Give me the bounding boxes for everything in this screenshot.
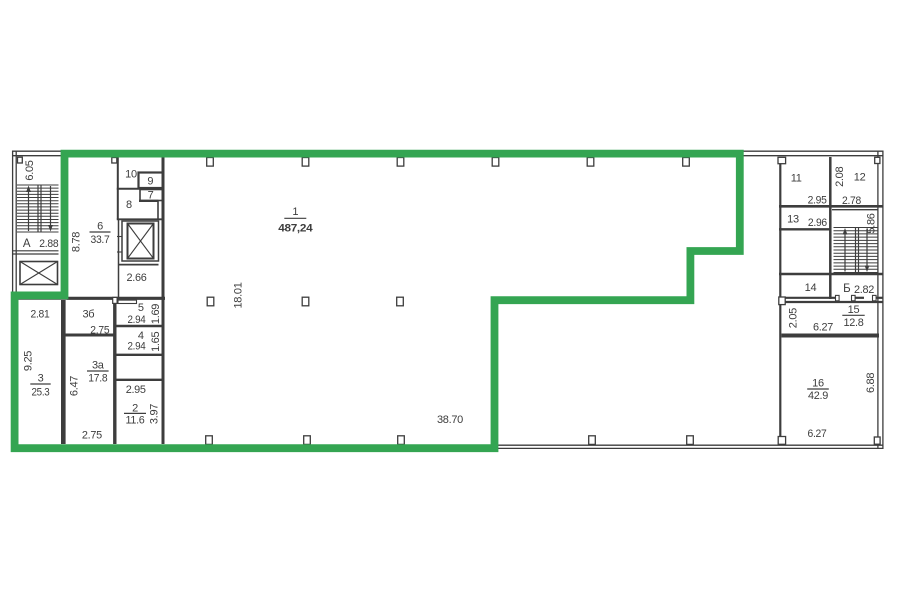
svg-text:8.78: 8.78 [70, 232, 82, 252]
svg-text:2: 2 [132, 402, 138, 414]
svg-text:42.9: 42.9 [808, 390, 828, 402]
svg-text:38.70: 38.70 [437, 414, 463, 426]
svg-text:6.27: 6.27 [813, 322, 833, 334]
svg-text:11.6: 11.6 [126, 415, 145, 427]
svg-text:2.96: 2.96 [808, 217, 827, 229]
svg-text:13: 13 [787, 214, 799, 226]
svg-text:12: 12 [854, 171, 866, 183]
svg-text:2.94: 2.94 [128, 314, 146, 326]
svg-text:15: 15 [848, 304, 860, 316]
svg-text:1.65: 1.65 [150, 332, 162, 352]
svg-text:6.47: 6.47 [68, 376, 80, 396]
svg-text:6.27: 6.27 [808, 428, 827, 440]
svg-text:2.88: 2.88 [39, 238, 58, 250]
svg-text:33.7: 33.7 [91, 234, 110, 246]
svg-text:2.66: 2.66 [127, 272, 147, 284]
svg-text:2.95: 2.95 [808, 194, 827, 206]
svg-text:Б: Б [843, 283, 850, 295]
svg-text:2.08: 2.08 [834, 167, 846, 187]
svg-text:3а: 3а [92, 360, 105, 372]
svg-text:2.75: 2.75 [82, 430, 102, 442]
svg-text:3б: 3б [82, 309, 94, 321]
svg-text:9.25: 9.25 [22, 351, 34, 371]
svg-text:7: 7 [148, 189, 154, 201]
svg-text:3: 3 [38, 373, 44, 385]
svg-text:17.8: 17.8 [88, 373, 107, 385]
svg-text:2.82: 2.82 [854, 284, 874, 296]
svg-text:2.94: 2.94 [128, 341, 146, 353]
svg-text:8: 8 [126, 199, 132, 211]
svg-text:25.3: 25.3 [32, 387, 50, 399]
svg-text:16: 16 [812, 378, 824, 390]
svg-text:487,24: 487,24 [278, 223, 313, 235]
svg-text:18.01: 18.01 [232, 282, 244, 308]
svg-text:5.86: 5.86 [865, 213, 877, 233]
svg-text:2.81: 2.81 [31, 308, 50, 320]
svg-text:2.95: 2.95 [126, 384, 146, 396]
svg-text:1.69: 1.69 [150, 304, 162, 324]
svg-text:2.78: 2.78 [842, 195, 861, 207]
svg-text:10: 10 [125, 169, 137, 181]
svg-text:3.97: 3.97 [149, 404, 161, 424]
svg-text:11: 11 [791, 173, 802, 185]
svg-text:2.05: 2.05 [787, 308, 799, 328]
svg-text:5: 5 [138, 302, 144, 314]
svg-text:6.05: 6.05 [24, 160, 36, 180]
svg-text:14: 14 [805, 282, 817, 294]
svg-text:6.88: 6.88 [865, 373, 877, 393]
svg-text:А: А [23, 238, 31, 250]
svg-text:2.75: 2.75 [90, 325, 109, 337]
svg-text:6: 6 [97, 221, 103, 233]
svg-text:9: 9 [147, 175, 153, 187]
svg-text:1: 1 [292, 206, 298, 218]
svg-text:12.8: 12.8 [844, 317, 864, 329]
